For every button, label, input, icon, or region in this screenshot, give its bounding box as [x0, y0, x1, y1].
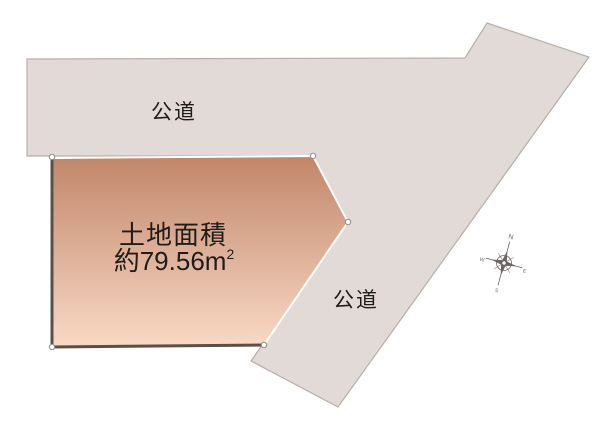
plot-area-text: 約79.56m2 [114, 246, 235, 276]
compass-west-label: W [479, 257, 485, 264]
road-label-top: 公道 [151, 101, 197, 124]
vertex-handle [49, 344, 54, 349]
plot-area-unit: m [205, 246, 227, 276]
compass-east-label: E [522, 268, 527, 275]
site-plan-canvas: 公道 公道 土地面積 約79.56m2 N E S W [0, 0, 600, 424]
vertex-handle [310, 153, 315, 158]
compass-rose: N E S W [472, 228, 535, 300]
road-label-right: 公道 [333, 289, 379, 312]
vertex-handle [345, 219, 350, 224]
site-plan: 公道 公道 土地面積 約79.56m2 N E S W [0, 0, 600, 424]
vertex-handle [261, 342, 266, 347]
vertex-handle [49, 154, 54, 159]
compass-south-label: S [494, 288, 499, 295]
plot-area-exponent: 2 [226, 246, 234, 262]
plot-area-value: 約79.56 [114, 246, 205, 276]
compass-north-label: N [508, 233, 515, 241]
